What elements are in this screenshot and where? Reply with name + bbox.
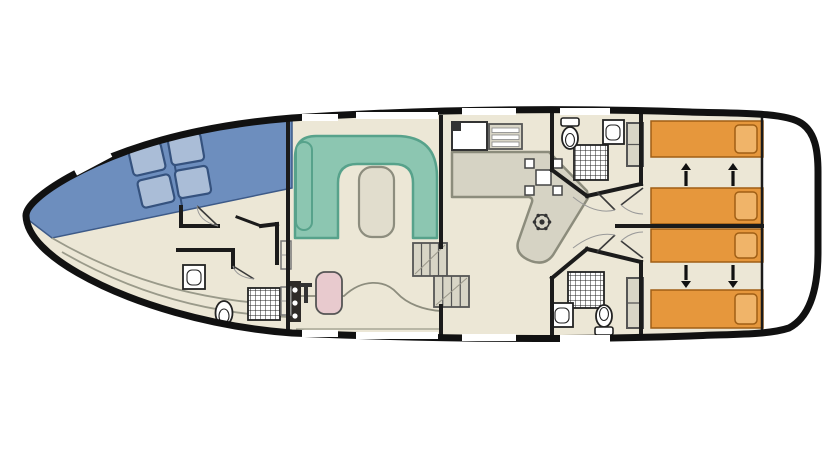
fridge-hinge	[452, 122, 461, 131]
shower-icon	[574, 145, 608, 180]
hull-window	[356, 112, 438, 119]
bed-pillow	[735, 192, 757, 220]
burner	[292, 300, 297, 305]
single-bed	[651, 290, 763, 328]
seat-cushion	[174, 165, 211, 198]
faucet-bar	[300, 283, 312, 287]
toilet-tank	[595, 327, 613, 335]
toilet-icon	[596, 305, 612, 327]
boat-floor-plan	[0, 0, 837, 450]
toilet-icon	[562, 127, 578, 149]
burner	[292, 313, 297, 318]
faucet-icon	[304, 286, 308, 303]
galley	[452, 122, 522, 150]
hull-window	[302, 114, 338, 121]
salon	[295, 136, 437, 238]
hull-window	[560, 108, 610, 115]
hull-window	[560, 335, 610, 342]
shower-grid	[248, 288, 280, 320]
burner	[292, 287, 297, 292]
wall	[261, 224, 277, 226]
single-bed	[651, 121, 763, 157]
salon-table	[359, 167, 394, 237]
stair-flight	[434, 276, 469, 307]
hull-window	[462, 334, 516, 341]
bed-pillow	[735, 294, 757, 324]
hull-window	[356, 332, 438, 339]
bed-pillow	[735, 125, 757, 153]
shower-grid	[574, 145, 608, 180]
galley-shelf	[492, 142, 519, 147]
sofa-bench	[296, 142, 312, 230]
deck-plan-svg	[0, 0, 837, 450]
single-bed	[651, 229, 763, 262]
hull-window	[302, 330, 338, 337]
kitchen-sink	[316, 272, 342, 314]
hull-window	[462, 108, 516, 115]
shower-icon	[248, 288, 280, 320]
stern-deck	[763, 100, 833, 350]
galley-shelf	[492, 135, 519, 140]
galley-shelf	[492, 128, 519, 133]
seat-cushion	[137, 174, 175, 209]
single-bed	[651, 188, 763, 224]
bed-pillow	[735, 233, 757, 258]
toilet-tank	[561, 118, 579, 126]
